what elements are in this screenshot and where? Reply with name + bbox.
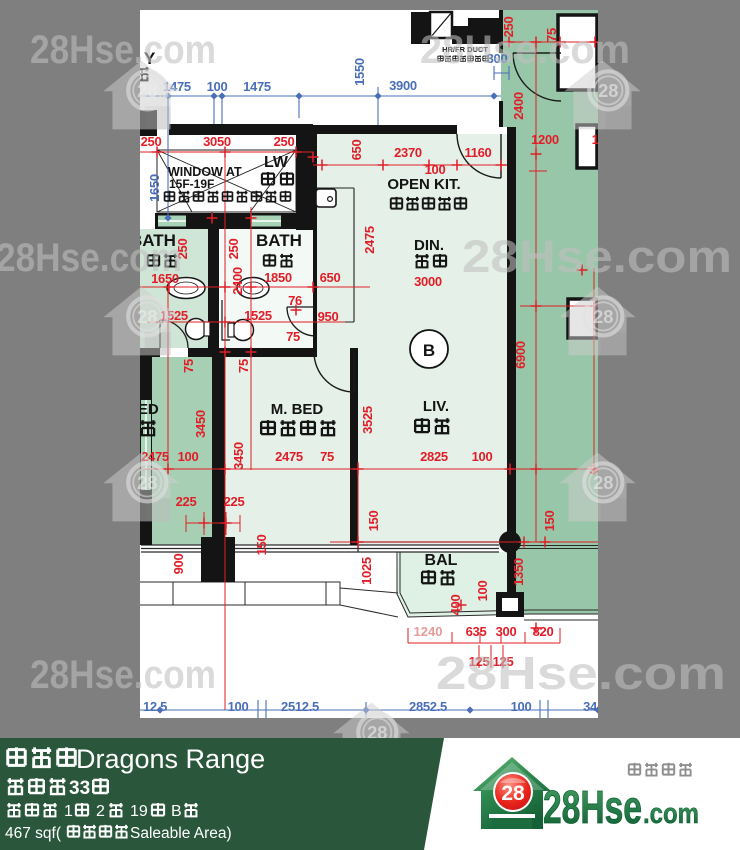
svg-text:1550: 1550: [352, 58, 367, 86]
svg-text:1200: 1200: [531, 132, 559, 147]
svg-text:150: 150: [542, 511, 557, 532]
svg-text:M. BED: M. BED: [271, 401, 324, 418]
svg-text:BAL: BAL: [425, 552, 458, 569]
svg-text:75: 75: [286, 329, 300, 344]
svg-text:1025: 1025: [359, 557, 374, 585]
svg-text:15F-19F: 15F-19F: [169, 177, 214, 191]
svg-text:28Hse: 28Hse: [543, 781, 642, 833]
svg-text:B: B: [171, 803, 182, 820]
svg-text:3900: 3900: [389, 78, 417, 93]
svg-text:1240: 1240: [414, 624, 443, 639]
svg-text:28Hse.com: 28Hse.com: [0, 236, 182, 280]
svg-text:6900: 6900: [513, 341, 528, 369]
svg-text:OPEN KIT.: OPEN KIT.: [387, 176, 460, 193]
svg-text:3000: 3000: [414, 274, 442, 289]
svg-text:28Hse.com: 28Hse.com: [436, 647, 726, 699]
svg-text:950: 950: [318, 309, 339, 324]
svg-text:225: 225: [176, 494, 197, 509]
svg-text:2475: 2475: [275, 449, 303, 464]
svg-text:75: 75: [320, 449, 334, 464]
svg-text:150: 150: [366, 511, 381, 532]
svg-text:33: 33: [69, 778, 90, 799]
svg-text:75: 75: [181, 359, 196, 373]
svg-text:2825: 2825: [420, 449, 448, 464]
svg-text:1350: 1350: [511, 558, 526, 586]
svg-text:1525: 1525: [244, 308, 272, 323]
svg-text:100: 100: [511, 699, 532, 714]
svg-text:DIN.: DIN.: [414, 237, 444, 254]
svg-text:1: 1: [64, 803, 73, 820]
svg-text:650: 650: [320, 270, 341, 285]
svg-text:1475: 1475: [243, 79, 271, 94]
svg-text:250: 250: [141, 134, 162, 149]
svg-text:2512.5: 2512.5: [281, 699, 319, 714]
svg-text:28: 28: [501, 782, 525, 805]
svg-text:28Hse.com: 28Hse.com: [30, 653, 216, 697]
svg-text:900: 900: [171, 554, 186, 575]
svg-text:150: 150: [254, 535, 269, 556]
svg-text:34: 34: [583, 699, 598, 714]
svg-text:100: 100: [425, 162, 446, 177]
svg-text:250: 250: [274, 134, 295, 149]
svg-text:2852.5: 2852.5: [409, 699, 447, 714]
svg-text:635: 635: [466, 624, 487, 639]
svg-text:250: 250: [226, 239, 241, 260]
svg-text:3450: 3450: [231, 442, 246, 470]
svg-text:12.5: 12.5: [143, 699, 167, 714]
svg-text:3525: 3525: [360, 406, 375, 434]
svg-text:467 sqf(: 467 sqf(: [5, 825, 62, 842]
svg-text:1160: 1160: [464, 145, 491, 160]
svg-text:3050: 3050: [203, 134, 231, 149]
svg-text:2475: 2475: [362, 226, 377, 254]
svg-text:400: 400: [448, 595, 463, 616]
svg-text:820: 820: [533, 624, 554, 639]
svg-text:100: 100: [228, 699, 249, 714]
svg-text:19: 19: [130, 803, 148, 820]
svg-text:100: 100: [475, 581, 490, 602]
svg-text:76: 76: [288, 293, 302, 308]
svg-text:.com: .com: [643, 798, 699, 830]
svg-text:225: 225: [224, 494, 245, 509]
svg-text:1650: 1650: [147, 174, 162, 202]
svg-text:2400: 2400: [511, 92, 526, 120]
svg-text:3450: 3450: [193, 410, 208, 438]
svg-text:300: 300: [496, 624, 517, 639]
svg-text:Saleable Area): Saleable Area): [130, 825, 232, 842]
svg-text:LIV.: LIV.: [423, 398, 449, 415]
svg-text:2370: 2370: [394, 145, 422, 160]
svg-text:2400: 2400: [230, 267, 245, 295]
svg-text:100: 100: [207, 79, 228, 94]
svg-text:100: 100: [178, 449, 199, 464]
svg-text:75: 75: [236, 359, 251, 373]
svg-text:2: 2: [96, 803, 105, 820]
svg-text:650: 650: [349, 140, 364, 161]
svg-text:BATH: BATH: [256, 231, 302, 250]
svg-text:28Hse.com: 28Hse.com: [30, 28, 216, 72]
svg-text:B: B: [423, 341, 435, 360]
svg-text:LW: LW: [264, 154, 289, 171]
svg-text:1850: 1850: [264, 270, 292, 285]
svg-text:Dragons Range: Dragons Range: [76, 744, 265, 774]
svg-text:28Hse.com: 28Hse.com: [462, 231, 732, 282]
svg-text:100: 100: [472, 449, 493, 464]
